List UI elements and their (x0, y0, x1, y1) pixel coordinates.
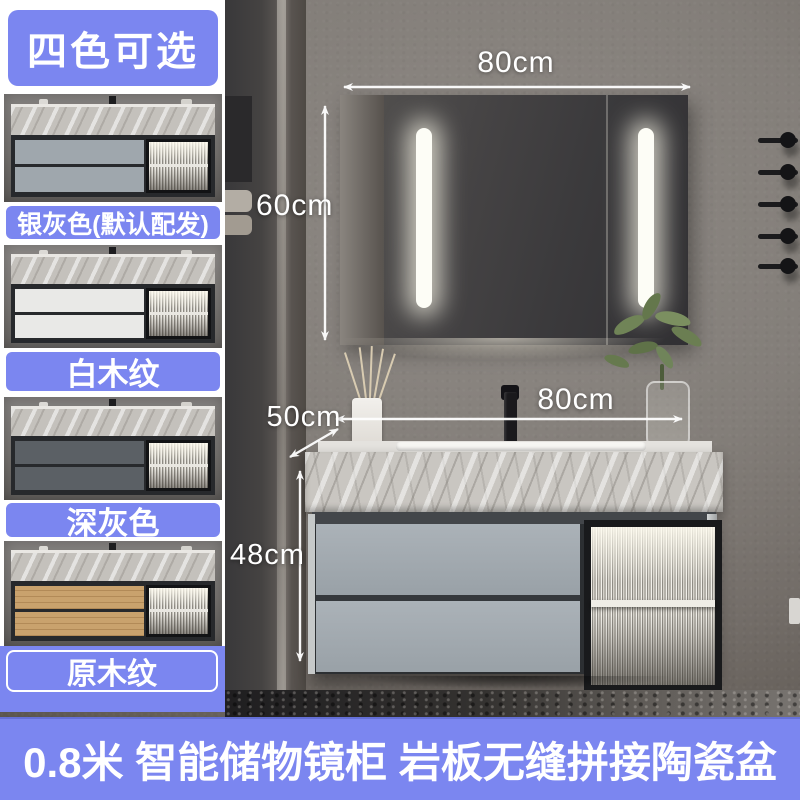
dimension-label-counter-depth: 50cm (266, 401, 342, 434)
slate-countertop (305, 452, 723, 512)
wall-outlet (789, 598, 800, 624)
glass-cabinet-shelf (591, 600, 715, 607)
variant-thumb-silver-gray (4, 94, 222, 202)
towel (225, 215, 252, 235)
variant-label-silver-gray: 银灰色(默认配发) (4, 204, 222, 241)
shower-shelf (225, 96, 252, 182)
product-title-banner: 0.8米 智能储物镜柜 岩板无缝拼接陶瓷盆 (0, 717, 800, 800)
led-strip-left (416, 128, 432, 308)
mirror-cabinet (340, 95, 688, 345)
drawer-bottom (316, 601, 580, 672)
product-title: 0.8米 智能储物镜柜 岩板无缝拼接陶瓷盆 (23, 729, 777, 790)
towel (225, 190, 252, 212)
shower-glass-panel (225, 0, 306, 692)
hook-icon (758, 234, 798, 239)
dimension-label-mirror-width: 80cm (446, 46, 586, 80)
glass-cabinet-lower (591, 615, 715, 685)
led-strip-right (638, 128, 654, 308)
hook-icon (758, 264, 798, 269)
glass-edge-highlight (277, 0, 286, 692)
variant-sidebar: 四色可选 银灰色(默认配发) 白木纹 深灰色 (0, 0, 225, 712)
variant-thumb-natural-wood (4, 541, 222, 646)
dimension-label-mirror-height: 60cm (256, 189, 330, 223)
hook-icon (758, 138, 798, 143)
ceramic-basin (396, 442, 646, 451)
variant-label-dark-gray: 深灰色 (4, 501, 222, 539)
product-image: 80cm 60cm 50cm 80cm 48cm 四色可选 银灰色(默认配发) … (0, 0, 800, 800)
mirror-door-seam (606, 95, 608, 345)
mirror-cabinet-side-panel (340, 95, 384, 345)
variant-thumb-dark-gray (4, 397, 222, 500)
terrazzo-floor (225, 690, 800, 718)
dimension-label-cabinet-height: 48cm (230, 539, 304, 572)
cabinet-left-trim (308, 514, 315, 674)
variant-label-white-wood: 白木纹 (4, 350, 222, 393)
variant-thumb-white-wood (4, 245, 222, 348)
towel-hooks (758, 130, 800, 280)
hook-icon (758, 170, 798, 175)
dimension-label-counter-width: 80cm (506, 383, 646, 417)
cabinet-drawers (316, 524, 580, 672)
glass-side-cabinet (584, 520, 722, 692)
variant-label-natural-wood-bar: 原木纹 (0, 646, 225, 712)
color-options-badge: 四色可选 (8, 10, 218, 86)
thumb-countertop (11, 104, 216, 138)
variant-label-natural-wood: 原木纹 (6, 650, 218, 692)
drawer-top (316, 524, 580, 595)
hook-icon (758, 202, 798, 207)
